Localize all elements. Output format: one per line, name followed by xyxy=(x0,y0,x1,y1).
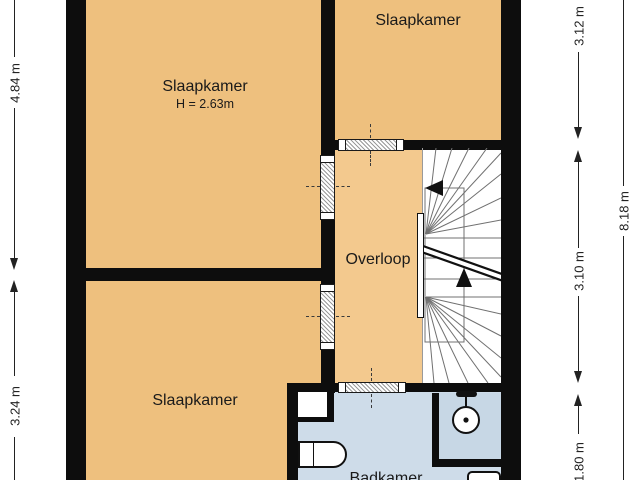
dimension-arrow-down xyxy=(10,258,18,270)
door-badkamer xyxy=(338,382,406,393)
window-frame-end xyxy=(396,139,404,151)
window-frame-end xyxy=(320,284,335,292)
window-center-tick xyxy=(306,316,320,317)
wall-bathroom-left xyxy=(287,385,298,480)
window-center-tick xyxy=(370,151,371,166)
window-frame-end xyxy=(338,139,346,151)
room-label-slaapkamer-top-left: Slaapkamer xyxy=(162,78,247,96)
dimension-arrow-down xyxy=(574,127,582,139)
dimension-label-right-top: 3.12 m xyxy=(572,6,587,46)
window-landing-lower xyxy=(320,284,335,350)
window-frame-end xyxy=(320,155,335,163)
dimension-label-right-middle: 3.10 m xyxy=(572,251,587,291)
room-height-note: H = 2.63m xyxy=(176,97,234,111)
room-label-overloop: Overloop xyxy=(346,251,411,269)
wall-bedroom-divider xyxy=(66,268,321,281)
window-frame-end xyxy=(398,382,406,393)
window-center-tick xyxy=(306,186,320,187)
dimension-line-left xyxy=(14,437,15,480)
window-center-tick xyxy=(371,368,372,381)
wall-shower-bottom xyxy=(432,459,501,467)
shower-head-icon xyxy=(448,388,486,436)
room-label-slaapkamer-bottom-left: Slaapkamer xyxy=(152,392,237,410)
dimension-line-right xyxy=(578,52,579,127)
floorplan-canvas: Slaapkamer H = 2.63m Slaapkamer Slaapkam… xyxy=(0,0,640,480)
dimension-line-right xyxy=(578,296,579,371)
window-center-tick xyxy=(336,186,350,187)
dimension-label-right-bottom: 1.80 m xyxy=(572,442,587,480)
dimension-arrow-up xyxy=(574,394,582,406)
stair-railing xyxy=(417,213,424,318)
dimension-line-outer xyxy=(623,236,624,480)
dimension-arrow-down xyxy=(574,371,582,383)
toilet-cistern-line xyxy=(313,443,314,466)
wall-exterior-right xyxy=(501,0,521,480)
window-landing-upper xyxy=(320,155,335,220)
window-frame-end xyxy=(338,382,346,393)
wall-shaft-bottom xyxy=(295,417,334,422)
dimension-line-outer xyxy=(623,0,624,186)
room-label-slaapkamer-top-right: Slaapkamer xyxy=(375,12,460,30)
staircase xyxy=(422,148,501,383)
room-label-badkamer: Badkamer xyxy=(350,470,423,480)
window-center-tick xyxy=(371,394,372,408)
wall-shower-left xyxy=(432,393,439,463)
dimension-line-left xyxy=(14,292,15,376)
dimension-line-right xyxy=(578,406,579,434)
washbasin xyxy=(467,471,501,480)
room-slaapkamer-top-left xyxy=(86,0,321,268)
window-bedroom-landing xyxy=(338,139,404,151)
window-frame-end xyxy=(320,212,335,220)
window-frame-end xyxy=(320,342,335,350)
dimension-label-left-top: 4.84 m xyxy=(8,63,23,103)
dimension-line-left xyxy=(14,0,15,57)
dimension-arrow-up xyxy=(574,150,582,162)
room-slaapkamer-bottom-left xyxy=(86,281,321,385)
stair-direction-arrow-up xyxy=(456,268,472,287)
dimension-label-left-bottom: 3.24 m xyxy=(8,386,23,426)
dimension-line-left xyxy=(14,108,15,258)
dimension-arrow-up xyxy=(10,280,18,292)
dimension-line-right xyxy=(578,162,579,248)
duct-shaft xyxy=(298,392,327,417)
dimension-label-outer: 8.18 m xyxy=(617,191,632,231)
window-center-tick xyxy=(370,124,371,138)
stair-direction-arrow-top xyxy=(425,180,443,196)
wall-exterior-left xyxy=(66,0,86,480)
window-center-tick xyxy=(336,316,350,317)
toilet xyxy=(298,441,347,468)
